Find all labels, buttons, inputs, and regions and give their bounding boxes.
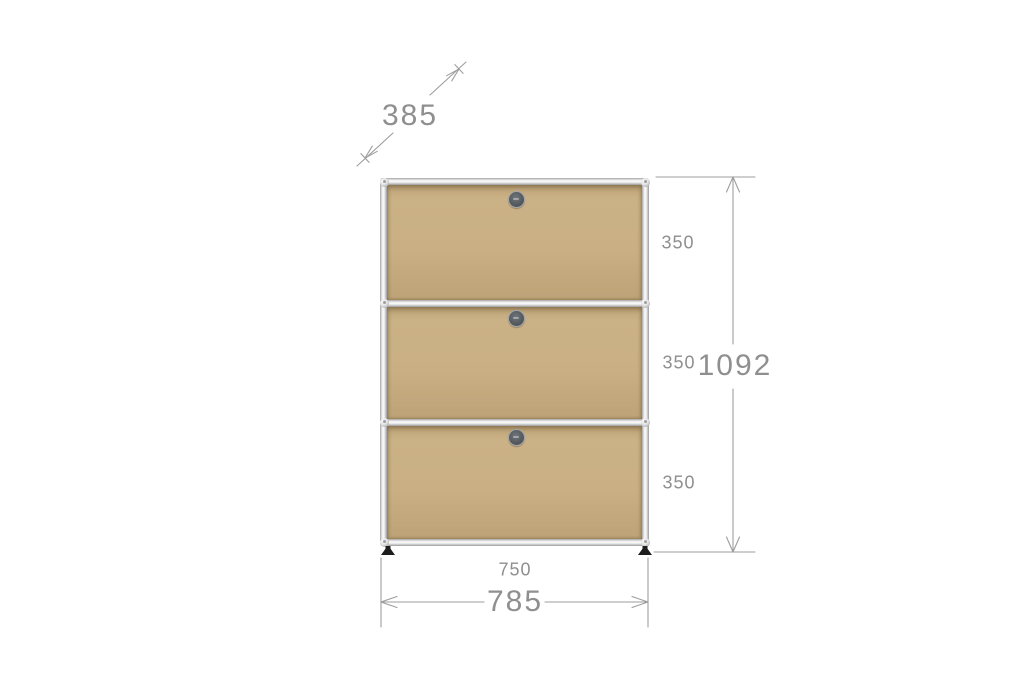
section-height-label-1: 350: [661, 233, 694, 254]
dimension-lines-layer: [0, 0, 1024, 683]
total-height-dimension-label: 1092: [698, 349, 773, 383]
product-dimension-drawing: 385 350 350 350 1092 750 785: [0, 0, 1024, 683]
depth-dimension-label: 385: [382, 99, 438, 133]
section-height-label-2: 350: [662, 353, 695, 374]
inner-width-dimension-label: 750: [498, 560, 531, 581]
outer-width-dimension-label: 785: [487, 585, 543, 619]
section-height-label-3: 350: [662, 473, 695, 494]
